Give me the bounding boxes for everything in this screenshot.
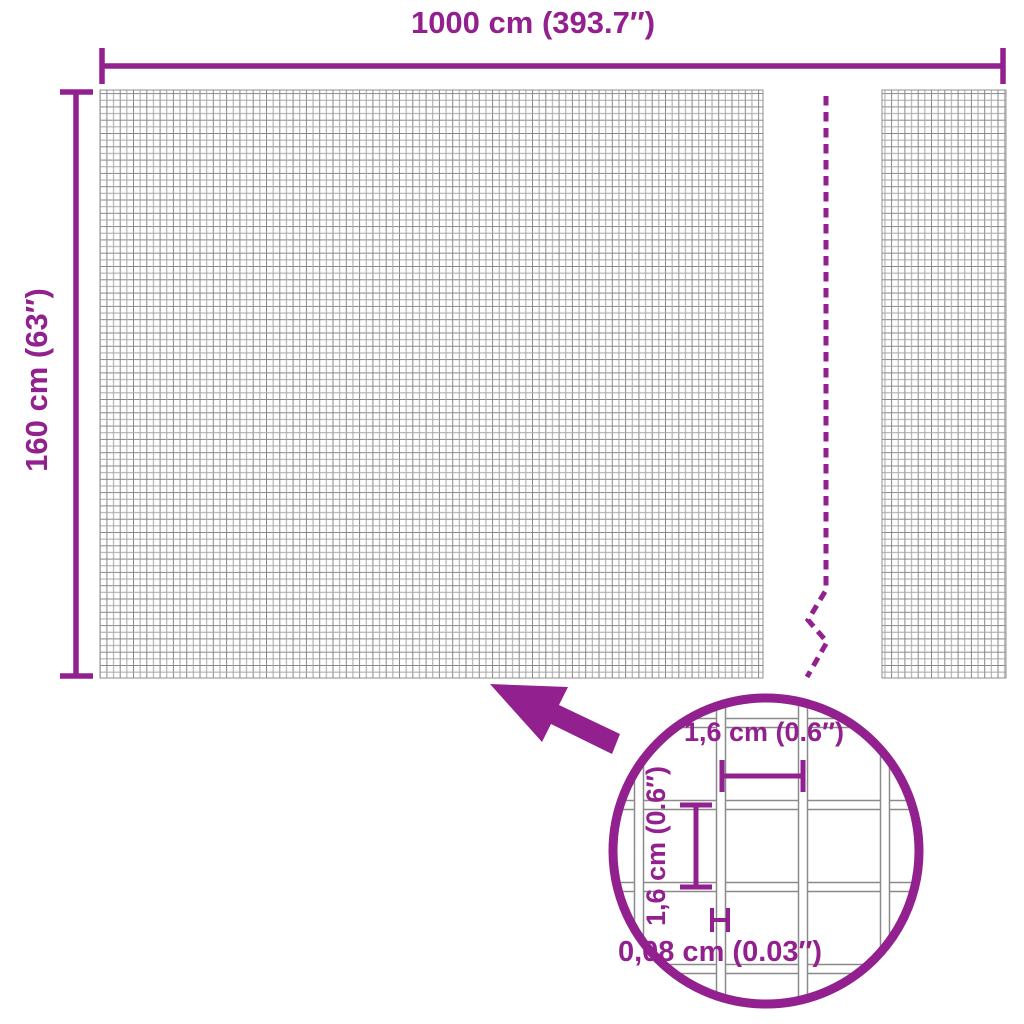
break-dashed-line [807, 96, 827, 677]
height-dimension-label: 160 cm (63″) [19, 288, 54, 472]
cell-height-label: 1,6 cm (0.6″) [641, 766, 671, 926]
mesh-panel-main [100, 90, 763, 678]
height-dimension-line [60, 92, 93, 676]
mesh-dimension-diagram: 1000 cm (393.7″) 160 cm (63″) [0, 0, 1024, 1024]
magnifier-arrow-icon [490, 684, 620, 754]
mesh-panel-continuation [882, 90, 1006, 678]
mesh-wire-vertical [881, 690, 890, 1012]
cell-width-label: 1,6 cm (0.6″) [684, 717, 844, 747]
width-dimension-label: 1000 cm (393.7″) [411, 5, 655, 40]
detail-lens: 1,6 cm (0.6″) 1,6 cm (0.6″) 0,08 cm (0.0… [600, 690, 932, 1012]
width-dimension-line [102, 48, 1003, 84]
product-diagram-canvas: 1000 cm (393.7″) 160 cm (63″) [0, 0, 1024, 1024]
